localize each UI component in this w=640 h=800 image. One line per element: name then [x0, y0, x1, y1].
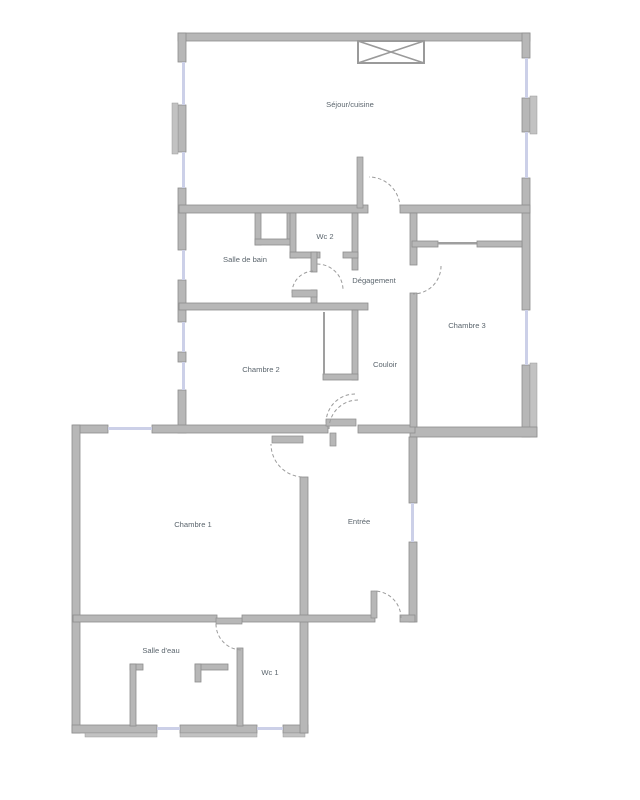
door-swing-arc	[317, 264, 343, 290]
room-label-wc2: Wc 2	[316, 232, 333, 241]
wall	[410, 427, 537, 437]
wall	[352, 213, 358, 270]
window	[182, 62, 185, 105]
window-sill	[283, 733, 305, 737]
room-label-chambre3: Chambre 3	[448, 321, 486, 330]
wall	[409, 437, 417, 503]
window	[157, 727, 180, 730]
window	[108, 427, 152, 430]
window	[411, 503, 414, 542]
wall	[130, 664, 136, 726]
wall	[358, 425, 415, 433]
door-leaf	[292, 290, 317, 297]
wall	[409, 542, 417, 622]
wall	[178, 33, 530, 41]
wall	[178, 188, 186, 250]
wall	[178, 105, 186, 152]
floor-plan-drawing: Séjour/cuisine Salle de bain Wc 2 Dégage…	[0, 0, 640, 800]
window	[182, 250, 185, 280]
wall	[237, 648, 243, 726]
floor-plan: Séjour/cuisine Salle de bain Wc 2 Dégage…	[0, 0, 640, 800]
room-labels: Séjour/cuisine Salle de bain Wc 2 Dégage…	[142, 100, 485, 677]
wall	[195, 664, 201, 682]
door-swing-arc	[374, 591, 401, 618]
window	[525, 310, 528, 365]
wall	[178, 280, 186, 322]
wall	[410, 293, 417, 427]
room-label-salle-de-bain: Salle de bain	[223, 255, 267, 264]
door-swing-arc	[326, 394, 355, 423]
window	[182, 152, 185, 188]
windows	[108, 58, 528, 730]
room-label-salle-deau: Salle d'eau	[142, 646, 179, 655]
wall	[73, 615, 217, 622]
window	[257, 727, 283, 730]
room-label-sejour: Séjour/cuisine	[326, 100, 374, 109]
room-label-wc1: Wc 1	[261, 668, 278, 677]
wall	[477, 241, 522, 247]
window	[182, 322, 185, 352]
wall	[400, 615, 415, 622]
wall	[178, 33, 186, 62]
wall	[352, 310, 358, 380]
room-label-couloir: Couloir	[373, 360, 398, 369]
room-label-degagement: Dégagement	[352, 276, 396, 285]
door-swing-arc	[369, 177, 400, 208]
wall	[152, 425, 328, 433]
exterior-walls	[72, 33, 537, 737]
niche-partition	[438, 242, 477, 245]
room-label-entree: Entrée	[348, 517, 370, 526]
wall	[400, 205, 530, 213]
wall	[323, 374, 358, 380]
door-leaf	[357, 157, 363, 208]
wall	[179, 303, 368, 310]
room-label-chambre1: Chambre 1	[174, 520, 212, 529]
wall	[242, 615, 375, 622]
window-sill	[85, 733, 157, 737]
door-swing-arc	[271, 444, 302, 477]
wall	[522, 33, 530, 58]
wall	[290, 213, 296, 258]
door-leaf	[371, 591, 377, 618]
wall	[412, 241, 438, 247]
door-leaf	[216, 618, 242, 624]
wall	[180, 725, 257, 733]
wall	[343, 252, 358, 258]
wall	[179, 205, 368, 213]
wall	[178, 352, 186, 362]
door-swing-arc	[413, 266, 441, 294]
window-sill	[530, 96, 537, 134]
wall	[311, 252, 317, 272]
window-sill	[530, 363, 537, 437]
closet-sliding-door	[323, 312, 325, 374]
window	[525, 58, 528, 98]
window-sill	[180, 733, 257, 737]
window	[525, 132, 528, 178]
wall	[300, 615, 308, 733]
wall	[72, 725, 157, 733]
wall	[522, 178, 530, 310]
room-label-chambre2: Chambre 2	[242, 365, 280, 374]
door-swing-arcs	[216, 177, 441, 650]
door-leaf	[272, 436, 303, 443]
window-sill	[172, 103, 178, 154]
wall	[522, 365, 530, 437]
wall	[72, 425, 80, 733]
wall	[255, 239, 293, 245]
door-leaf	[330, 433, 336, 446]
window	[182, 362, 185, 390]
wall	[410, 213, 417, 265]
wall	[300, 477, 308, 617]
wall	[522, 98, 530, 132]
shaft-cross-symbol	[358, 41, 424, 63]
door-swing-arc	[216, 624, 242, 650]
